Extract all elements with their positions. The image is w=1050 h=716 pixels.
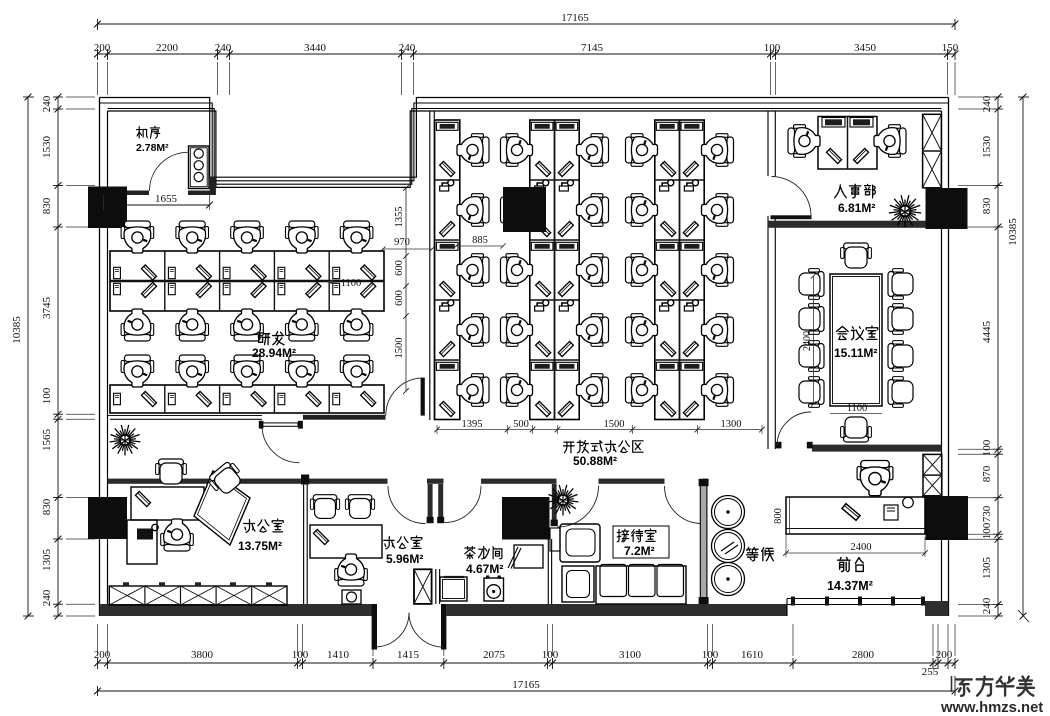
svg-text:3100: 3100 <box>619 649 642 661</box>
svg-text:1100: 1100 <box>341 278 362 289</box>
svg-text:600: 600 <box>394 290 405 306</box>
svg-text:970: 970 <box>394 237 410 248</box>
svg-text:240: 240 <box>215 42 232 54</box>
svg-text:1410: 1410 <box>327 649 350 661</box>
svg-text:2075: 2075 <box>483 649 506 661</box>
svg-text:28.94M²: 28.94M² <box>252 346 296 360</box>
svg-text:6.81M²: 6.81M² <box>838 201 875 215</box>
svg-text:800: 800 <box>773 508 784 524</box>
svg-text:240: 240 <box>981 95 993 112</box>
svg-text:830: 830 <box>41 197 53 214</box>
svg-text:17165: 17165 <box>512 679 540 691</box>
svg-text:240: 240 <box>41 95 53 112</box>
svg-text:1530: 1530 <box>981 136 993 159</box>
svg-text:500: 500 <box>513 419 529 430</box>
svg-text:15.11M²: 15.11M² <box>834 346 877 360</box>
svg-text:2.78M²: 2.78M² <box>136 142 169 154</box>
svg-text:240: 240 <box>981 597 993 614</box>
svg-text:870: 870 <box>981 465 993 482</box>
svg-text:7145: 7145 <box>581 42 604 54</box>
svg-text:1500: 1500 <box>604 419 625 430</box>
svg-text:100: 100 <box>981 439 993 456</box>
svg-text:100: 100 <box>764 42 781 54</box>
svg-text:100: 100 <box>702 649 719 661</box>
svg-text:1500: 1500 <box>394 338 405 359</box>
svg-text:100: 100 <box>41 387 53 404</box>
svg-text:3440: 3440 <box>304 42 327 54</box>
svg-text:50.88M²: 50.88M² <box>573 454 617 468</box>
svg-text:1655: 1655 <box>155 193 178 205</box>
svg-text:13.75M²: 13.75M² <box>238 539 282 553</box>
svg-text:150: 150 <box>942 42 959 54</box>
svg-text:1305: 1305 <box>41 549 53 572</box>
svg-text:200: 200 <box>94 42 111 54</box>
svg-text:730: 730 <box>981 505 993 522</box>
svg-text:4445: 4445 <box>981 321 993 344</box>
svg-text:1610: 1610 <box>741 649 764 661</box>
svg-text:2400: 2400 <box>851 542 872 553</box>
svg-text:7.2M²: 7.2M² <box>624 544 655 558</box>
svg-text:3800: 3800 <box>191 649 214 661</box>
svg-text:100: 100 <box>542 649 559 661</box>
svg-text:4.67M²: 4.67M² <box>466 562 503 576</box>
svg-text:100: 100 <box>292 649 309 661</box>
svg-text:830: 830 <box>981 197 993 214</box>
svg-text:10385: 10385 <box>1007 218 1019 246</box>
svg-text:830: 830 <box>41 498 53 515</box>
svg-text:1300: 1300 <box>721 419 742 430</box>
svg-text:240: 240 <box>41 589 53 606</box>
svg-text:5.96M²: 5.96M² <box>386 552 423 566</box>
svg-text:1355: 1355 <box>394 207 405 228</box>
svg-text:3745: 3745 <box>41 297 53 320</box>
svg-text:240: 240 <box>399 42 416 54</box>
svg-text:1100: 1100 <box>847 403 868 414</box>
svg-text:10385: 10385 <box>11 316 23 344</box>
svg-text:200: 200 <box>936 649 953 661</box>
svg-text:1415: 1415 <box>397 649 420 661</box>
svg-text:885: 885 <box>472 235 488 246</box>
svg-text:200: 200 <box>94 649 111 661</box>
svg-text:2400: 2400 <box>802 331 813 351</box>
svg-text:255: 255 <box>922 666 939 678</box>
svg-text:14.37M²: 14.37M² <box>827 579 873 593</box>
svg-text:1565: 1565 <box>41 429 53 452</box>
svg-text:3450: 3450 <box>854 42 877 54</box>
svg-text:1305: 1305 <box>981 557 993 580</box>
svg-text:100: 100 <box>981 522 993 539</box>
svg-text:2800: 2800 <box>852 649 875 661</box>
svg-text:www.hmzs.net: www.hmzs.net <box>940 700 1043 716</box>
svg-text:2200: 2200 <box>156 42 179 54</box>
svg-text:17165: 17165 <box>561 12 589 24</box>
svg-text:1530: 1530 <box>41 136 53 159</box>
svg-text:1395: 1395 <box>462 419 483 430</box>
svg-text:600: 600 <box>394 260 405 276</box>
